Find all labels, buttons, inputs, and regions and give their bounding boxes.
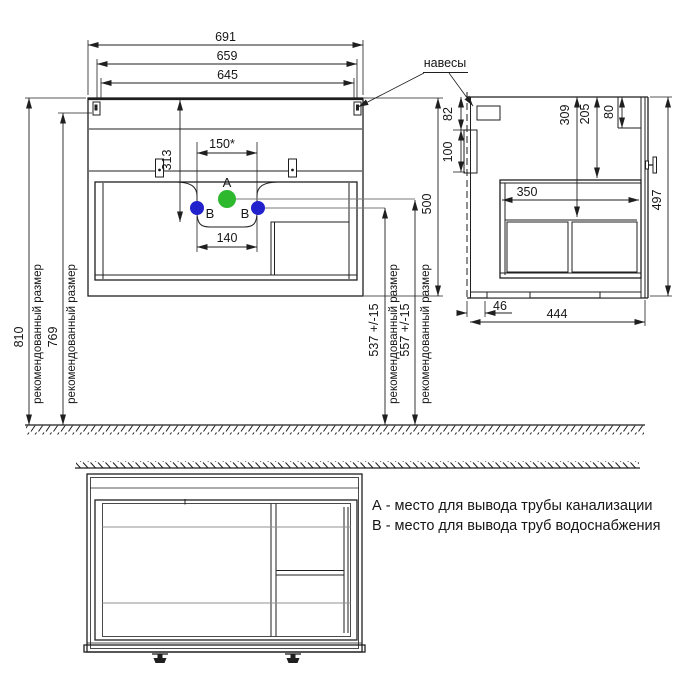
svg-text:659: 659 xyxy=(217,49,238,63)
dim-overall-height: 497 xyxy=(650,97,672,296)
svg-text:205: 205 xyxy=(578,104,592,125)
floor-line xyxy=(25,425,645,435)
dim-inner-width: 645 xyxy=(101,68,354,100)
dim-pipe-a-height: 557 +/-15 рекомендованный размер xyxy=(398,200,432,425)
dim-top-rail-depth: 80 xyxy=(602,97,622,128)
svg-text:500: 500 xyxy=(420,194,434,215)
point-a-sewage xyxy=(218,190,236,208)
dim-pipe-span: 140 xyxy=(197,216,257,252)
point-b-water-left xyxy=(190,201,204,215)
plan-view xyxy=(84,474,365,663)
side-cabinet-outline xyxy=(467,97,648,298)
svg-text:82: 82 xyxy=(441,107,455,121)
svg-text:537 +/-15: 537 +/-15 xyxy=(367,303,381,356)
plan-interior-box xyxy=(95,499,357,640)
legend: А - место для вывода трубы канализации В… xyxy=(372,498,660,534)
svg-text:46: 46 xyxy=(493,299,507,313)
front-hanger-right xyxy=(354,102,361,115)
side-view: 82 100 309 205 80 350 497 xyxy=(441,92,672,326)
sink-fix-bracket-right xyxy=(289,159,297,177)
svg-text:рекомендованный размер: рекомендованный размер xyxy=(66,264,78,404)
dim-mount-height-hangers: 769 рекомендованный размер xyxy=(46,113,92,425)
dim-sink-axis: 313 xyxy=(160,100,180,222)
wall-hatching xyxy=(76,461,639,468)
dim-pipe-b-height: 537 +/-15 рекомендованный размер xyxy=(367,208,400,425)
bottom-recess-front xyxy=(600,292,641,298)
svg-text:309: 309 xyxy=(558,105,572,126)
front-view: A B B 691 659 645 313 xyxy=(12,30,473,425)
dim-box-top-offset: 205 xyxy=(578,97,597,178)
legend-item-b: В - место для вывода труб водоснабжения xyxy=(372,518,660,534)
point-b-water-right xyxy=(251,201,265,215)
wall-line xyxy=(75,461,640,468)
installation-drawing: A B B 691 659 645 313 xyxy=(0,0,700,700)
bottom-recess-back xyxy=(487,292,530,298)
svg-text:810: 810 xyxy=(12,327,26,348)
foot-left xyxy=(152,654,168,663)
svg-text:497: 497 xyxy=(650,190,664,211)
svg-text:рекомендованный размер: рекомендованный размер xyxy=(32,264,44,404)
foot-right xyxy=(285,654,301,663)
svg-text:769: 769 xyxy=(46,327,60,348)
front-drawer-box xyxy=(271,222,349,275)
svg-text:444: 444 xyxy=(547,307,568,321)
svg-text:313: 313 xyxy=(160,150,174,171)
drawing-canvas: A B B 691 659 645 313 xyxy=(0,0,700,700)
dim-drawer-top-offset: 309 xyxy=(558,97,577,217)
svg-text:691: 691 xyxy=(215,30,236,44)
svg-text:рекомендованный размер: рекомендованный размер xyxy=(420,264,432,404)
side-hanger-box xyxy=(477,106,500,120)
door-handle xyxy=(646,157,657,173)
dim-hanger-height: 100 xyxy=(441,130,465,172)
hangers-label: навесы xyxy=(424,56,467,70)
front-hanger-left xyxy=(93,102,100,115)
floor-hatching xyxy=(26,426,644,435)
svg-text:350: 350 xyxy=(517,185,538,199)
svg-text:100: 100 xyxy=(441,142,455,163)
dim-inner-box-depth: 350 xyxy=(502,185,639,200)
svg-text:150*: 150* xyxy=(209,137,235,151)
point-b-label-left: B xyxy=(206,206,215,221)
point-b-label-right: B xyxy=(241,206,250,221)
svg-text:140: 140 xyxy=(217,231,238,245)
point-a-label: A xyxy=(223,175,232,190)
svg-text:557 +/-15: 557 +/-15 xyxy=(398,303,412,356)
dim-top-rail-height: 82 xyxy=(441,97,465,130)
svg-text:645: 645 xyxy=(217,68,238,82)
side-drawer-front xyxy=(572,222,637,272)
side-drawer-back xyxy=(507,222,568,272)
svg-text:80: 80 xyxy=(602,105,616,119)
hangers-callout: навесы xyxy=(358,56,473,107)
dim-wall-gap: 46 xyxy=(458,299,512,317)
legend-item-a: А - место для вывода трубы канализации xyxy=(372,498,652,514)
